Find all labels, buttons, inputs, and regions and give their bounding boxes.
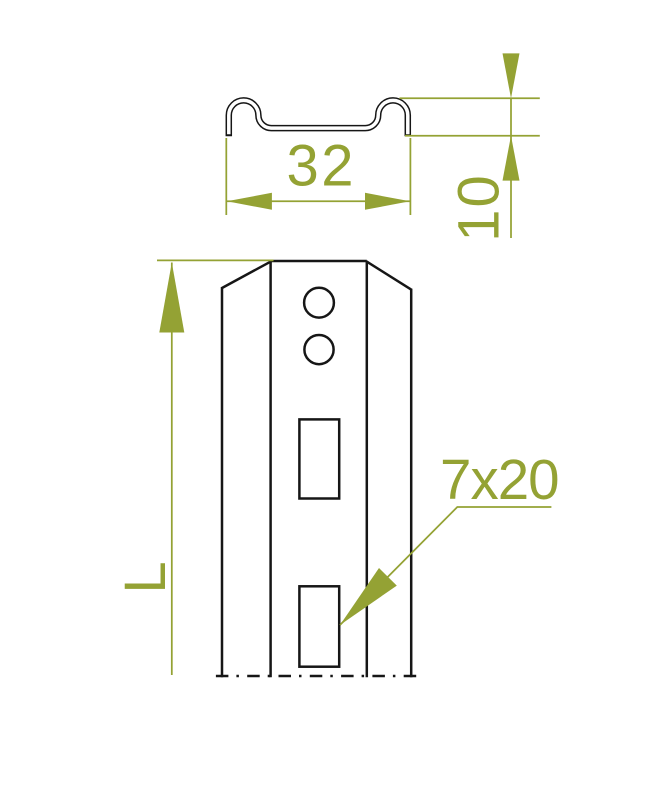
svg-text:L: L xyxy=(113,561,178,593)
svg-text:7x20: 7x20 xyxy=(440,448,559,511)
svg-text:32: 32 xyxy=(287,134,357,199)
svg-text:10: 10 xyxy=(447,173,512,242)
